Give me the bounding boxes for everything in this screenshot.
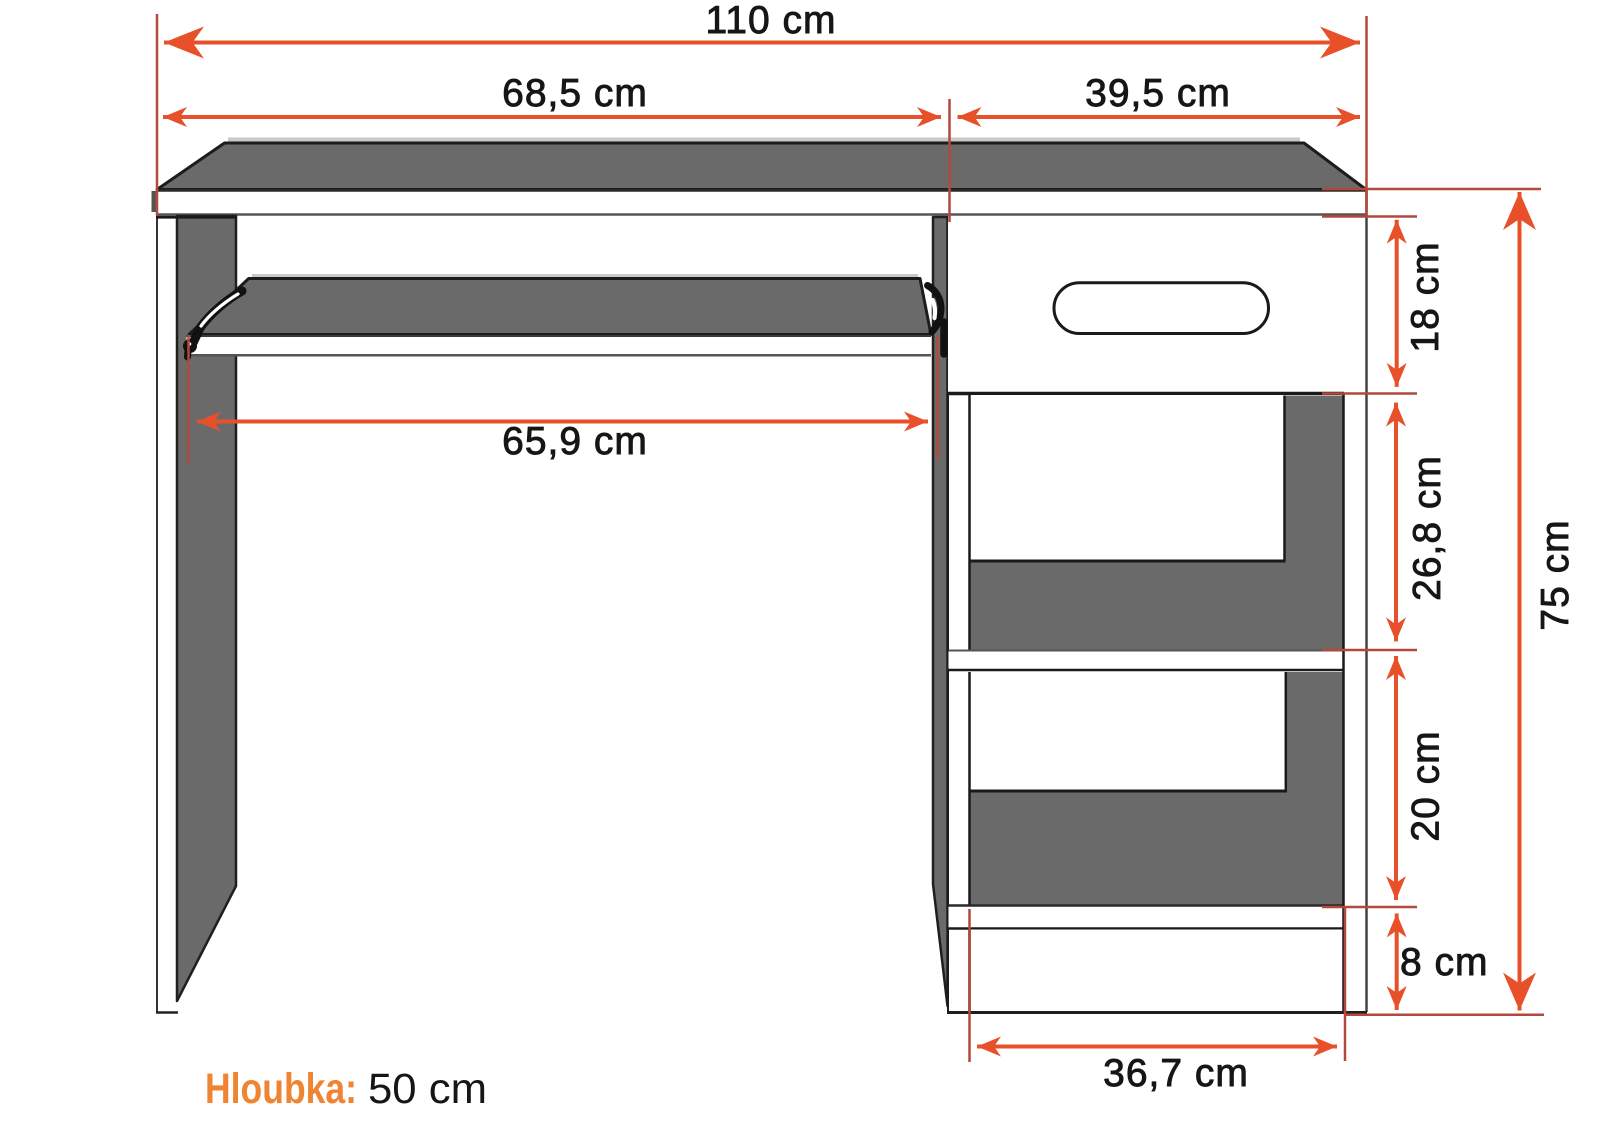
svg-text:50 cm: 50 cm: [368, 1065, 487, 1113]
svg-text:8 cm: 8 cm: [1400, 941, 1489, 984]
svg-text:18 cm: 18 cm: [1404, 241, 1447, 352]
svg-text:39,5 cm: 39,5 cm: [1085, 72, 1231, 115]
svg-text:26,8 cm: 26,8 cm: [1406, 455, 1449, 601]
svg-text:Hloubka:: Hloubka:: [205, 1065, 357, 1113]
svg-text:20 cm: 20 cm: [1405, 730, 1448, 841]
svg-text:68,5 cm: 68,5 cm: [502, 72, 648, 115]
svg-text:65,9 cm: 65,9 cm: [502, 420, 648, 463]
svg-text:36,7 cm: 36,7 cm: [1103, 1052, 1249, 1095]
svg-text:75 cm: 75 cm: [1534, 519, 1577, 630]
svg-text:110 cm: 110 cm: [706, 0, 837, 42]
